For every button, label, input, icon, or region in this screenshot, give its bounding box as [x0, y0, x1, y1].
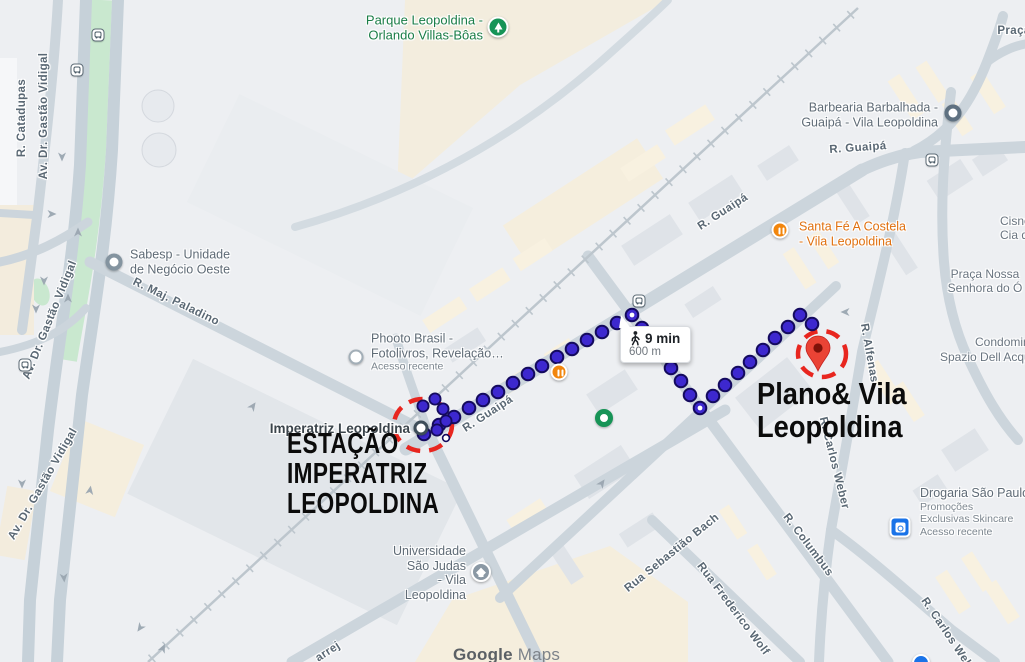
santa-fe-a-costela-label[interactable]: Santa Fé A Costela- Vila Leopoldina [799, 220, 906, 249]
origin-annotation-line3: LEOPOLDINA [287, 489, 439, 519]
origin-annotation-line2: IMPERATRIZ [287, 459, 439, 489]
phooto-brasil-label[interactable]: Phooto Brasil -Fotolivros, Revelação…Ace… [371, 331, 504, 373]
universidade-sao-judas-label-line: Leopoldina [393, 588, 466, 603]
transit-icon[interactable] [633, 295, 646, 308]
google-maps-watermark[interactable]: GoogleMaps [453, 645, 560, 662]
barbearia-barbalhada-icon[interactable] [945, 105, 962, 122]
universidade-sao-judas-label[interactable]: UniversidadeSão Judas- VilaLeopoldina [393, 544, 466, 602]
route-dot [596, 326, 609, 339]
route-dot [757, 344, 770, 357]
route-dot [782, 321, 795, 334]
road-arrow-icon [134, 622, 146, 634]
universidade-sao-judas-label-line: São Judas [393, 559, 466, 574]
transit-icon[interactable] [71, 64, 84, 77]
route-dot [463, 402, 476, 415]
barbearia-barbalhada-label[interactable]: Barbearia Barbalhada -Guaipá - Vila Leop… [801, 101, 938, 130]
route-dot [429, 393, 440, 404]
route-dot [707, 390, 720, 403]
route-duration-tooltip[interactable]: 9 min 600 m [620, 326, 691, 363]
route-dot [522, 368, 535, 381]
universidade-sao-judas-icon[interactable] [471, 562, 491, 582]
route-dot [551, 351, 564, 364]
destination-pin[interactable] [806, 336, 830, 371]
parque-leopoldina-label-line: Orlando Villas-Bôas [366, 28, 483, 43]
road-arrow-icon [48, 210, 57, 218]
road-arrow-icon [18, 480, 26, 489]
route-dot [675, 375, 688, 388]
sabesp-label[interactable]: Sabesp - Unidadede Negócio Oeste [130, 248, 230, 277]
restaurant-icon[interactable] [551, 364, 568, 381]
route-dot [507, 377, 520, 390]
parque-leopoldina-label-line: Parque Leopoldina - [366, 14, 483, 29]
santa-fe-a-costela-icon[interactable] [772, 222, 789, 239]
route-dot [732, 367, 745, 380]
road-arrow-icon [841, 308, 850, 316]
santa-fe-a-costela-label-line: - Vila Leopoldina [799, 234, 906, 249]
destination-annotation: Plano& Vila Leopoldina [757, 377, 907, 443]
parque-leopoldina-label[interactable]: Parque Leopoldina -Orlando Villas-Bôas [366, 14, 483, 43]
route-dot [684, 389, 697, 402]
route-dot [437, 403, 448, 414]
watermark-google: Google [453, 645, 513, 662]
origin-annotation: ESTAÇÃO IMPERATRIZ LEOPOLDINA [287, 429, 439, 519]
phooto-brasil-label-line: Fotolivros, Revelação… [371, 346, 504, 361]
route-dot [719, 379, 732, 392]
route-duration: 9 min [645, 331, 680, 346]
santa-fe-a-costela-label-line: Santa Fé A Costela [799, 220, 906, 235]
phooto-brasil-label-line: Phooto Brasil - [371, 331, 504, 346]
route-dot [566, 343, 579, 356]
route-dot [492, 386, 505, 399]
drogaria-sao-paulo-sub-line: Promoções [920, 501, 1025, 514]
destination-annotation-line1: Plano& Vila [757, 377, 907, 410]
origin-annotation-line1: ESTAÇÃO [287, 429, 439, 459]
transit-icon[interactable] [926, 154, 939, 167]
route-dot [665, 362, 678, 375]
transit-icon[interactable] [19, 359, 32, 372]
route-distance: 600 m [629, 346, 680, 358]
route-dot [806, 318, 819, 331]
route-dot [417, 400, 428, 411]
phooto-brasil-sub-line: Acesso recente [371, 360, 504, 373]
drogaria-sao-paulo-label[interactable]: Drogaria São PauloPromoçõesExclusivas Sk… [920, 486, 1025, 538]
universidade-sao-judas-label-line: Universidade [393, 544, 466, 559]
route-dot [581, 334, 594, 347]
parque-leopoldina-icon[interactable] [488, 17, 509, 38]
destination-annotation-line2: Leopoldina [757, 410, 907, 443]
drogaria-sao-paulo-icon[interactable] [890, 517, 911, 538]
phooto-brasil-icon[interactable] [349, 350, 364, 365]
route-waypoint-dot [698, 406, 703, 411]
drogaria-sao-paulo-sub-line: Exclusivas Skincare [920, 513, 1025, 526]
route-dot [744, 356, 757, 369]
sabesp-label-line: de Negócio Oeste [130, 262, 230, 277]
sabesp-label-line: Sabesp - Unidade [130, 248, 230, 263]
road-arrow-icon [58, 153, 66, 162]
barbearia-barbalhada-label-line: Guaipá - Vila Leopoldina [801, 115, 938, 130]
route-dot [536, 360, 549, 373]
drogaria-sao-paulo-sub-line: Acesso recente [920, 526, 1025, 539]
route-dot [794, 309, 807, 322]
route-start-dot [443, 435, 450, 442]
route-dot [440, 415, 451, 426]
route-dot [769, 332, 782, 345]
walking-icon [629, 331, 641, 346]
drogaria-sao-paulo-label-line: Drogaria São Paulo [920, 486, 1025, 501]
watermark-maps: Maps [518, 645, 560, 662]
transit-icon[interactable] [92, 29, 105, 42]
park-dot-icon[interactable] [595, 409, 613, 427]
universidade-sao-judas-label-line: - Vila [393, 573, 466, 588]
map-canvas[interactable] [0, 0, 1025, 662]
barbearia-barbalhada-label-line: Barbearia Barbalhada - [801, 101, 938, 116]
sabesp-icon[interactable] [106, 254, 123, 271]
route-dot [477, 394, 490, 407]
destination-pin-center [813, 343, 822, 352]
map-viewport[interactable]: R. CatadupasAv. Dr. Gastão VidigalAv. Dr… [0, 0, 1025, 662]
